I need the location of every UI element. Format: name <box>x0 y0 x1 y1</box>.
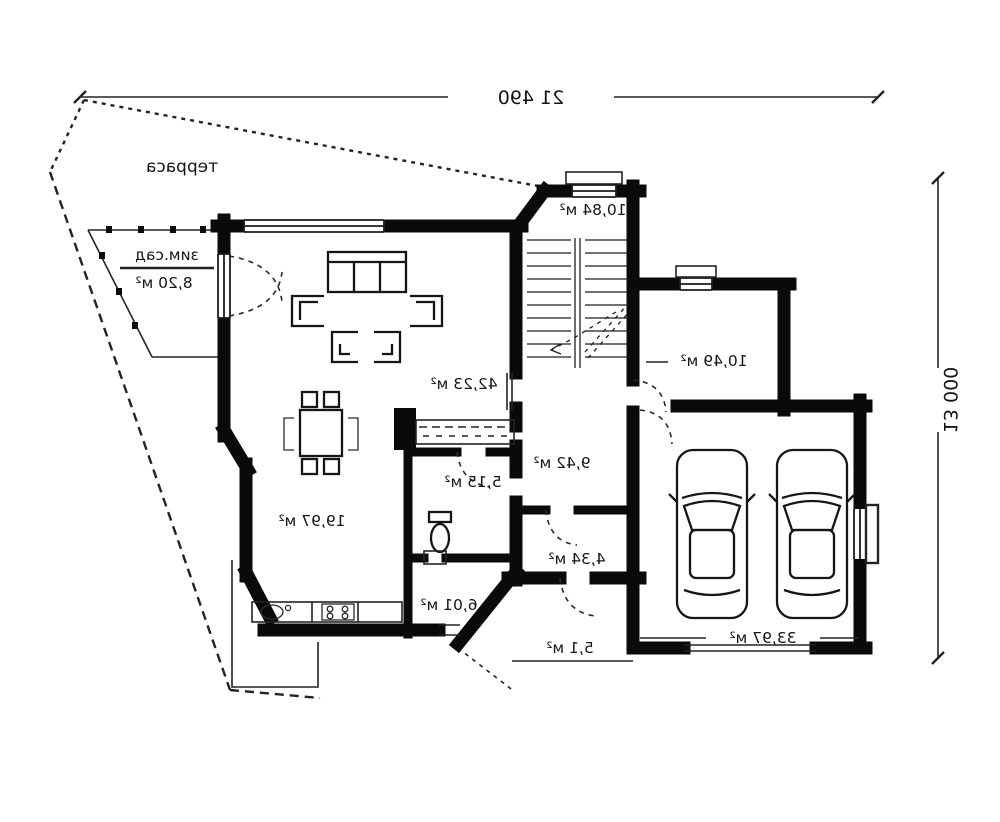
room-label-bathroom: 6,01 м² <box>420 596 477 614</box>
room-label-garage: 33,97 м² <box>729 629 796 647</box>
room-label-wc: 5,15 м² <box>444 473 501 491</box>
window-study <box>676 266 716 291</box>
pass-through-counter <box>416 420 514 444</box>
kitchen-counter <box>252 602 402 622</box>
room-label-living: 42,23 м² <box>430 375 497 393</box>
sofa-icon <box>328 252 406 292</box>
winter-garden-area: 8,20 м² <box>135 274 192 292</box>
dimension-top: 21 490 <box>74 87 884 109</box>
staircase <box>527 238 631 368</box>
room-label-study: 10,49 м² <box>680 352 747 370</box>
stove-icon <box>322 604 354 620</box>
garage-cars <box>669 450 855 618</box>
car-icon <box>669 450 755 618</box>
window-garage-right <box>853 505 878 563</box>
car-icon <box>769 450 855 618</box>
room-labels: 10,84 м² 42,23 м² 19,97 м² 5,15 м² 9,42 … <box>278 201 796 657</box>
armchair-right-icon <box>410 296 442 326</box>
room-label-entry: 10,84 м² <box>559 201 626 219</box>
dimension-right: 13 000 <box>932 172 961 664</box>
window-living-left <box>217 254 231 318</box>
room-label-porch: 5,1 м² <box>546 639 593 657</box>
armchair-left-icon <box>292 296 324 326</box>
room-label-hall: 9,42 м² <box>533 454 590 472</box>
room-label-corridor: 4,34 м² <box>548 550 605 568</box>
walls <box>217 186 866 648</box>
terrace-area: терраса <box>146 157 218 177</box>
window-entry <box>566 172 622 198</box>
coffee-table-icon <box>332 332 400 362</box>
terrace-label: терраса <box>146 157 218 177</box>
window-living-top <box>244 219 384 233</box>
room-label-kitchen: 19,97 м² <box>278 512 345 530</box>
winter-garden-name: зим.сад <box>135 246 199 264</box>
floor-plan-drawing: 21 490 13 000 терраса зим.сад 8,20 м² <box>0 0 1000 822</box>
winter-garden: зим.сад 8,20 м² <box>88 226 222 357</box>
living-furniture <box>284 252 442 474</box>
dining-set-icon <box>284 392 358 474</box>
floor-plan-page: 21 490 13 000 терраса зим.сад 8,20 м² <box>0 0 1000 822</box>
dim-height-label: 13 000 <box>939 367 961 433</box>
dim-width-label: 21 490 <box>498 87 564 109</box>
toilet-icon <box>429 512 451 552</box>
